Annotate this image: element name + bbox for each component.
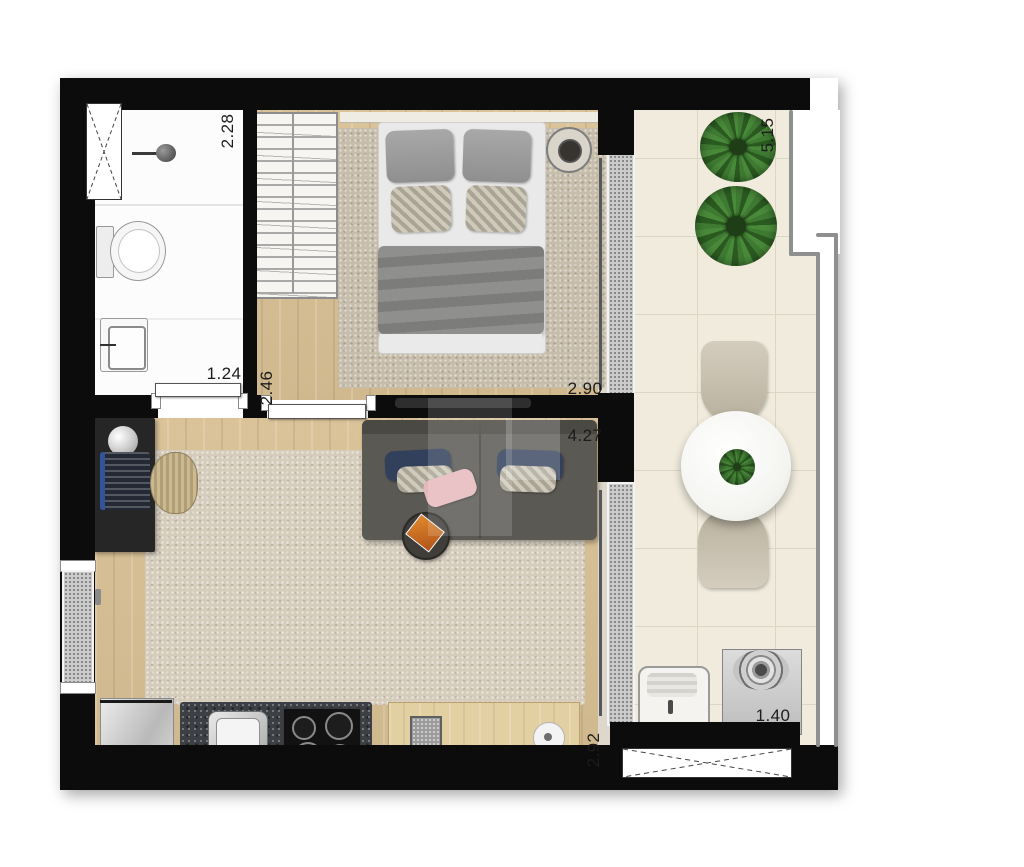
wall-divider-top	[598, 108, 634, 155]
washing-machine-lid	[733, 650, 789, 690]
bed-blanket	[378, 246, 544, 334]
laundry-tank-faucet	[668, 700, 673, 714]
toilet-seat	[118, 229, 160, 273]
washbasin	[108, 326, 146, 370]
bedroom-slider-jamb	[366, 395, 376, 411]
bedroom-curtain	[607, 153, 635, 399]
entry-glass-panel	[62, 570, 94, 686]
bedside-table-top	[558, 139, 582, 163]
table-centerpiece-plant	[719, 449, 755, 485]
balcony-plant	[695, 186, 777, 266]
bed-accent-pillow	[465, 185, 527, 233]
watermark-overlay	[428, 398, 512, 536]
dimension-label-living: 4.27	[545, 426, 625, 446]
living-sliding-glass-door	[599, 490, 602, 716]
dimension-label-balcony: 5.15	[758, 95, 778, 175]
floor-plan-canvas: 2.28 5.15 1.24 2.46 2.90 4.27 2.92 1.40	[0, 0, 1024, 867]
dimension-label-bedroom: 2.90	[545, 379, 625, 399]
laptop	[100, 452, 150, 510]
bathroom-tile-line	[95, 204, 243, 206]
cooktop-burner	[325, 712, 353, 740]
bathroom-x-window	[86, 103, 122, 200]
bed-sheet	[380, 334, 542, 352]
entry-jamb	[60, 682, 96, 694]
counter-plate-center	[544, 733, 552, 741]
bedroom-sliding-glass-door	[599, 158, 602, 390]
bed-accent-pillow	[390, 185, 452, 233]
dimension-label-hall: 2.46	[257, 348, 277, 428]
glass-railing	[789, 110, 793, 256]
bathroom-door-leaf	[155, 383, 241, 397]
glass-railing	[816, 252, 820, 747]
desk-chair	[150, 452, 198, 514]
wardrobe-center-line	[292, 114, 294, 293]
bedroom-sliding-door-leaf	[268, 404, 366, 419]
dimension-label-kitchen: 2.92	[584, 710, 604, 790]
wall-bath-bedroom	[243, 110, 257, 400]
dimension-label-bath-door: 1.24	[184, 364, 264, 384]
laptop-edge	[100, 452, 105, 510]
shower-head-icon	[156, 144, 176, 162]
laundry-tank-ridges	[647, 673, 697, 697]
bed-pillow	[462, 129, 532, 183]
cooktop-burner	[292, 716, 316, 740]
dimension-label-service: 1.40	[733, 706, 813, 726]
fridge-top-line	[100, 700, 172, 703]
service-x-vent-window	[622, 748, 792, 778]
wardrobe	[252, 112, 338, 299]
bed-pillow	[385, 129, 455, 183]
glass-railing	[834, 233, 838, 747]
wall-partition-a	[95, 395, 158, 418]
entry-door-handle	[95, 589, 101, 605]
wall-top	[60, 78, 810, 110]
dimension-label-bathroom: 2.28	[218, 91, 238, 171]
living-curtain	[607, 482, 635, 726]
washbasin-faucet	[100, 344, 116, 346]
